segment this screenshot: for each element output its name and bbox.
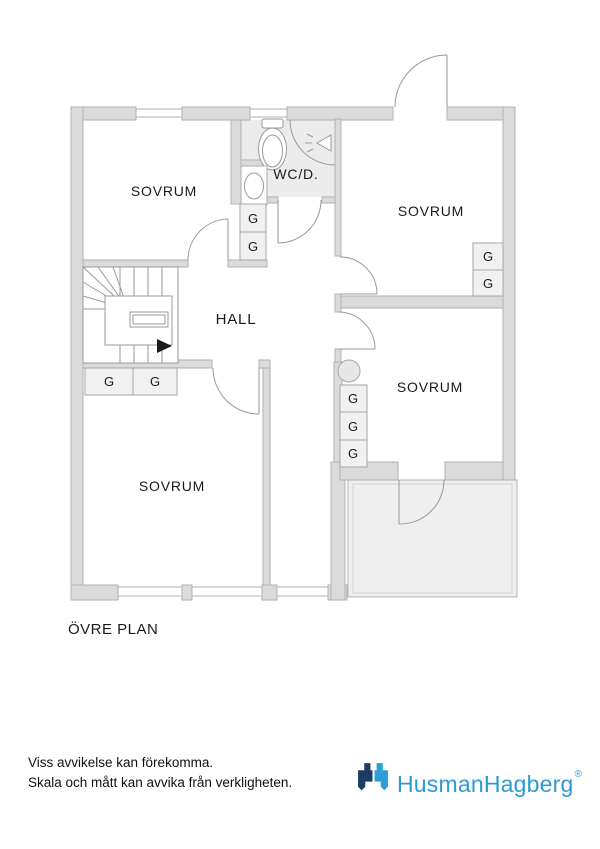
door-bedroom-top-left (188, 219, 228, 260)
door-wc (278, 200, 321, 243)
plan-title: ÖVRE PLAN (68, 620, 158, 638)
closet: G (473, 270, 503, 296)
window (192, 587, 262, 596)
floor-plan: G G G G G G G (0, 0, 600, 660)
stairs (83, 267, 178, 363)
closet-label: G (348, 446, 358, 461)
toilet-icon (259, 119, 287, 170)
closet: G (473, 243, 503, 270)
brand-wordmark: HusmanHagberg (397, 773, 573, 796)
balcony (348, 480, 517, 597)
window (250, 109, 287, 117)
closet-label: G (348, 391, 358, 406)
room-label-bedroom-bottom-left: SOVRUM (139, 478, 205, 494)
disclaimer-line-2: Skala och mått kan avvika från verklighe… (28, 773, 292, 793)
room-label-bedroom-mid-right: SOVRUM (397, 379, 463, 395)
closet-label: G (483, 276, 493, 291)
balcony-floor (348, 480, 517, 597)
room-label-hall: HALL (216, 311, 257, 328)
closet-label: G (483, 249, 493, 264)
closet: G (133, 368, 177, 395)
room-label-bedroom-top-left: SOVRUM (131, 183, 197, 199)
closet: G (340, 412, 367, 440)
closet: G (340, 385, 367, 412)
window (118, 587, 182, 596)
floorplan-page: G G G G G G G (0, 0, 600, 849)
closet-label: G (248, 211, 258, 226)
registered-mark: ® (574, 769, 581, 780)
door-bedroom-top-right (340, 257, 377, 294)
room-label-bedroom-top-right: SOVRUM (398, 203, 464, 219)
closet: G (240, 204, 266, 232)
disclaimer-line-1: Viss avvikelse kan förekomma. (28, 753, 292, 773)
brand-logo-icon (356, 761, 390, 794)
chimney-circle (338, 360, 360, 382)
closet-label: G (150, 374, 160, 389)
disclaimer: Viss avvikelse kan förekomma. Skala och … (28, 753, 292, 793)
door-exterior-top (395, 55, 447, 107)
closet: G (240, 232, 266, 260)
room-label-wc: WC/D. (273, 166, 318, 182)
closet-label: G (104, 374, 114, 389)
closet: G (85, 368, 133, 395)
window (277, 587, 328, 596)
brand-icon-right-tower (375, 763, 388, 790)
closet-label: G (248, 239, 258, 254)
brand-logo: HusmanHagberg ® (356, 761, 581, 794)
brand-icon-left-tower (358, 763, 372, 790)
door-bedroom-mid-right (339, 312, 375, 349)
door-bedroom-bottom-left (213, 368, 259, 414)
window (136, 109, 182, 117)
sink-icon (241, 166, 267, 205)
closet-label: G (348, 419, 358, 434)
closet: G (340, 440, 367, 467)
